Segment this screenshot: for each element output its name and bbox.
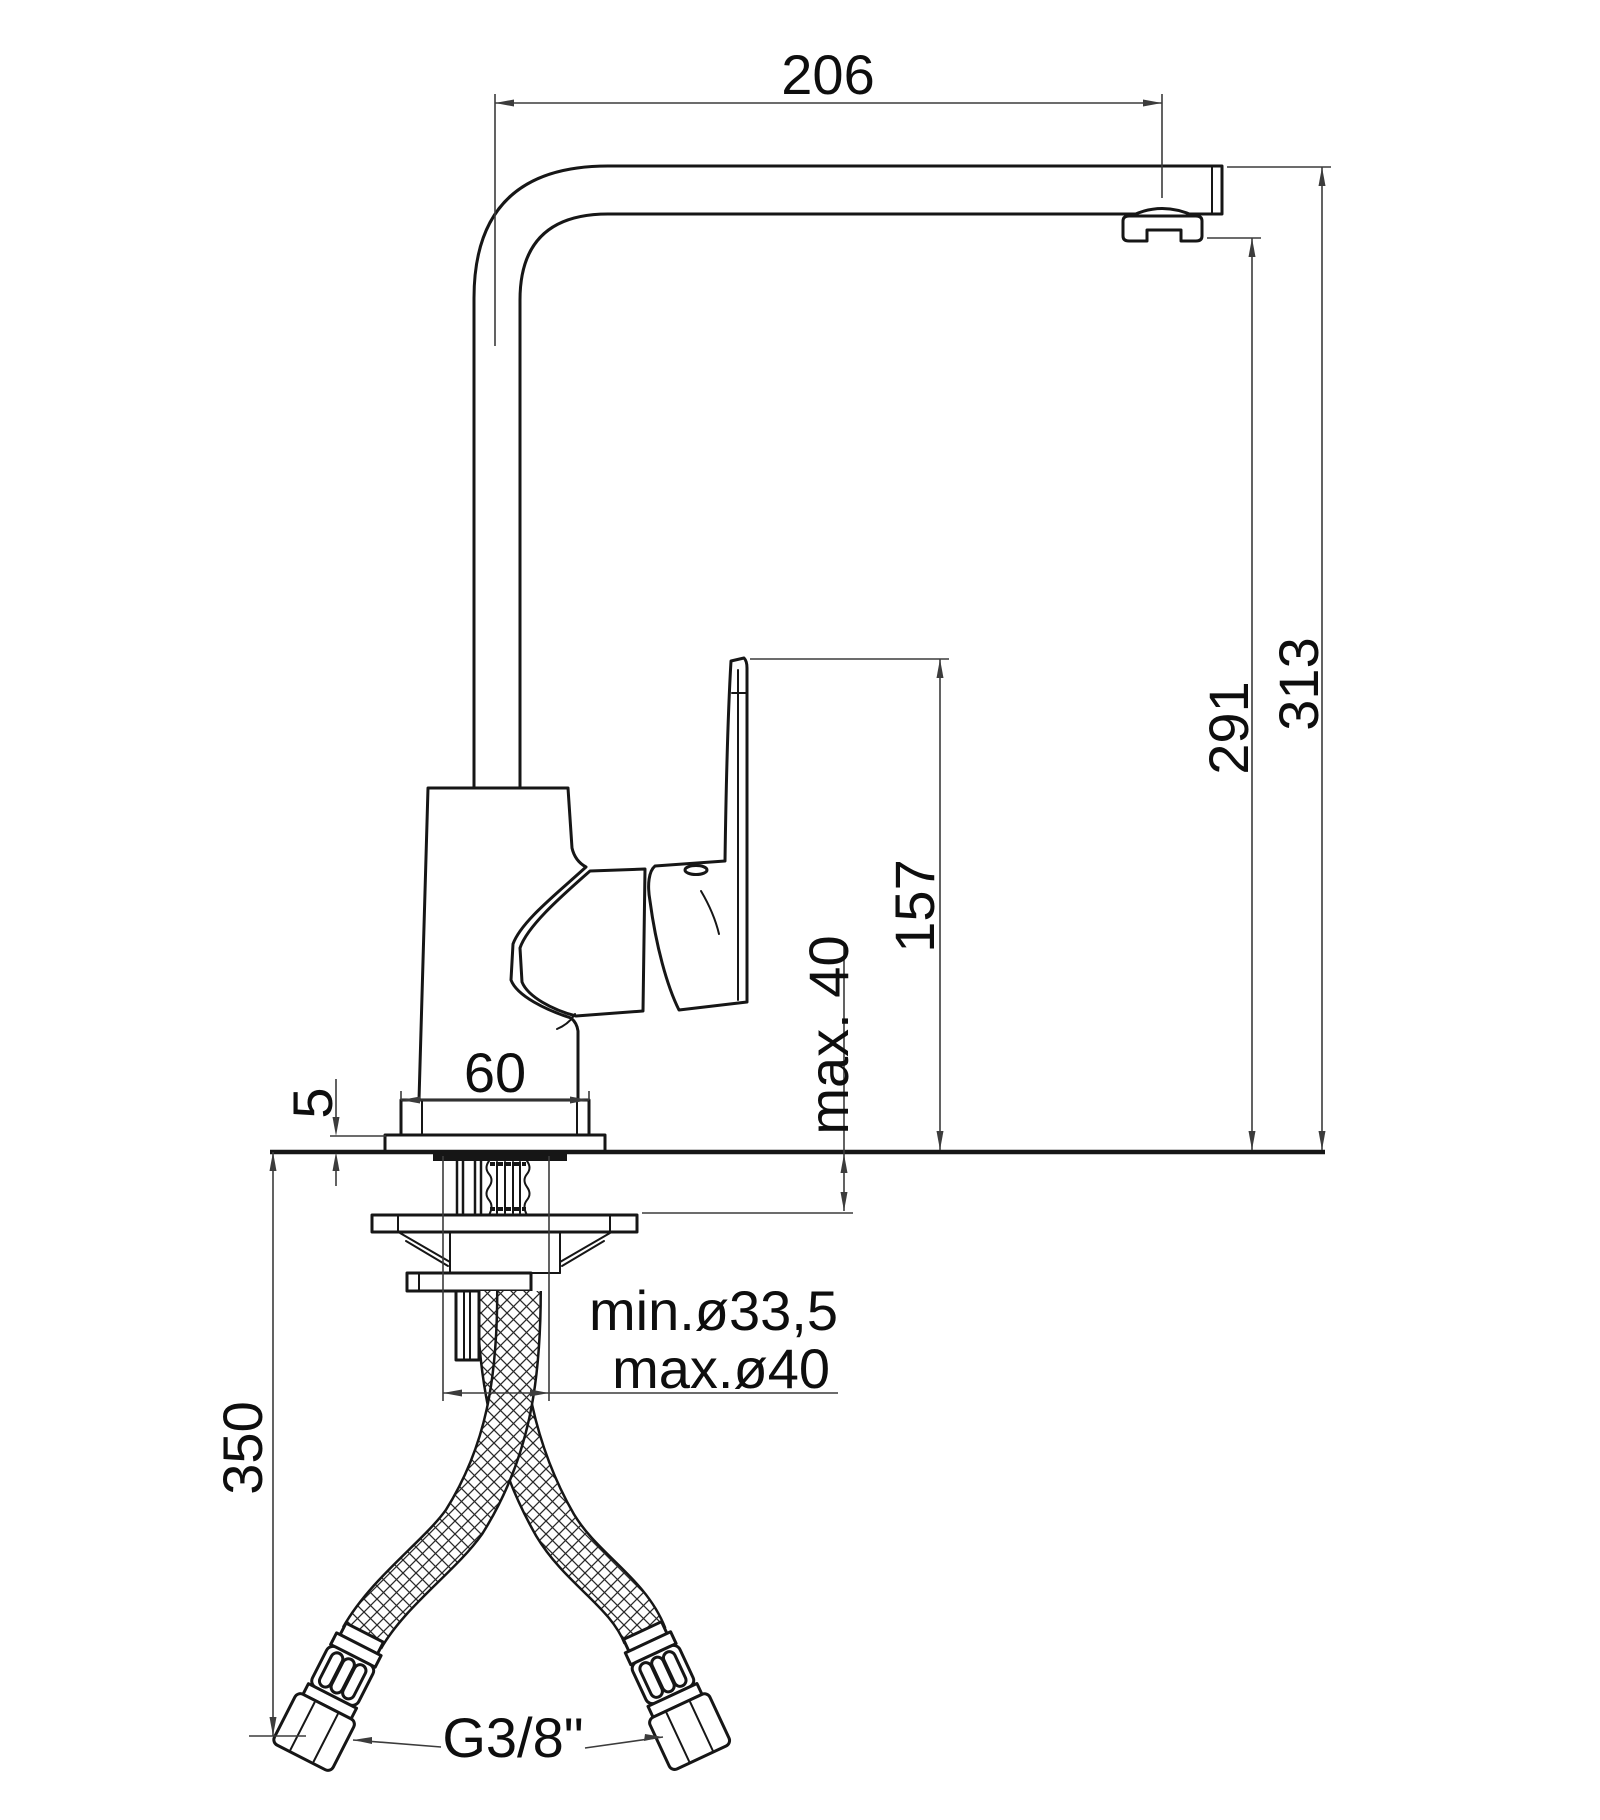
threaded-shank <box>487 1161 530 1215</box>
dimension-annotations: 206 313 291 157 max. 40 <box>211 43 1331 1769</box>
faucet-base <box>385 1100 605 1152</box>
dim-total-height: 313 <box>1227 167 1331 1150</box>
dim-label-thread: G3/8" <box>442 1706 583 1769</box>
dim-label-60: 60 <box>464 1041 526 1104</box>
dim-label-hole-max: max.ø40 <box>612 1337 830 1400</box>
base-plate <box>385 1135 605 1152</box>
supply-pipe-stub <box>456 1291 479 1360</box>
threaded-studs <box>457 1161 481 1215</box>
hose-fitting-right <box>613 1617 732 1772</box>
dim-label-hole-min: min.ø33,5 <box>589 1279 838 1342</box>
gasket <box>433 1153 567 1161</box>
dim-thread-callout: G3/8" <box>353 1706 663 1769</box>
dim-label-5: 5 <box>281 1087 344 1118</box>
mounting-hardware <box>372 1153 637 1291</box>
dim-label-350: 350 <box>211 1401 274 1494</box>
hose-fitting-left <box>272 1618 394 1773</box>
dim-label-313: 313 <box>1267 637 1330 730</box>
handle-lever <box>649 658 747 1010</box>
dim-label-291: 291 <box>1197 681 1260 774</box>
dim-label-157: 157 <box>883 859 946 952</box>
dim-label-206: 206 <box>781 43 874 106</box>
dim-hose-length: 350 <box>211 1152 306 1736</box>
spout <box>474 166 1222 800</box>
dim-label-max40: max. 40 <box>797 935 860 1134</box>
dim-aerator-height: 291 <box>1197 238 1261 1150</box>
dim-plate-thickness: 5 <box>281 1079 386 1186</box>
mounting-flange <box>372 1215 637 1273</box>
lock-nut <box>407 1273 531 1291</box>
supply-hose-left <box>362 1291 519 1638</box>
technical-drawing-page: 206 313 291 157 max. 40 <box>0 0 1600 1820</box>
faucet-dimension-drawing: 206 313 291 157 max. 40 <box>0 0 1600 1820</box>
